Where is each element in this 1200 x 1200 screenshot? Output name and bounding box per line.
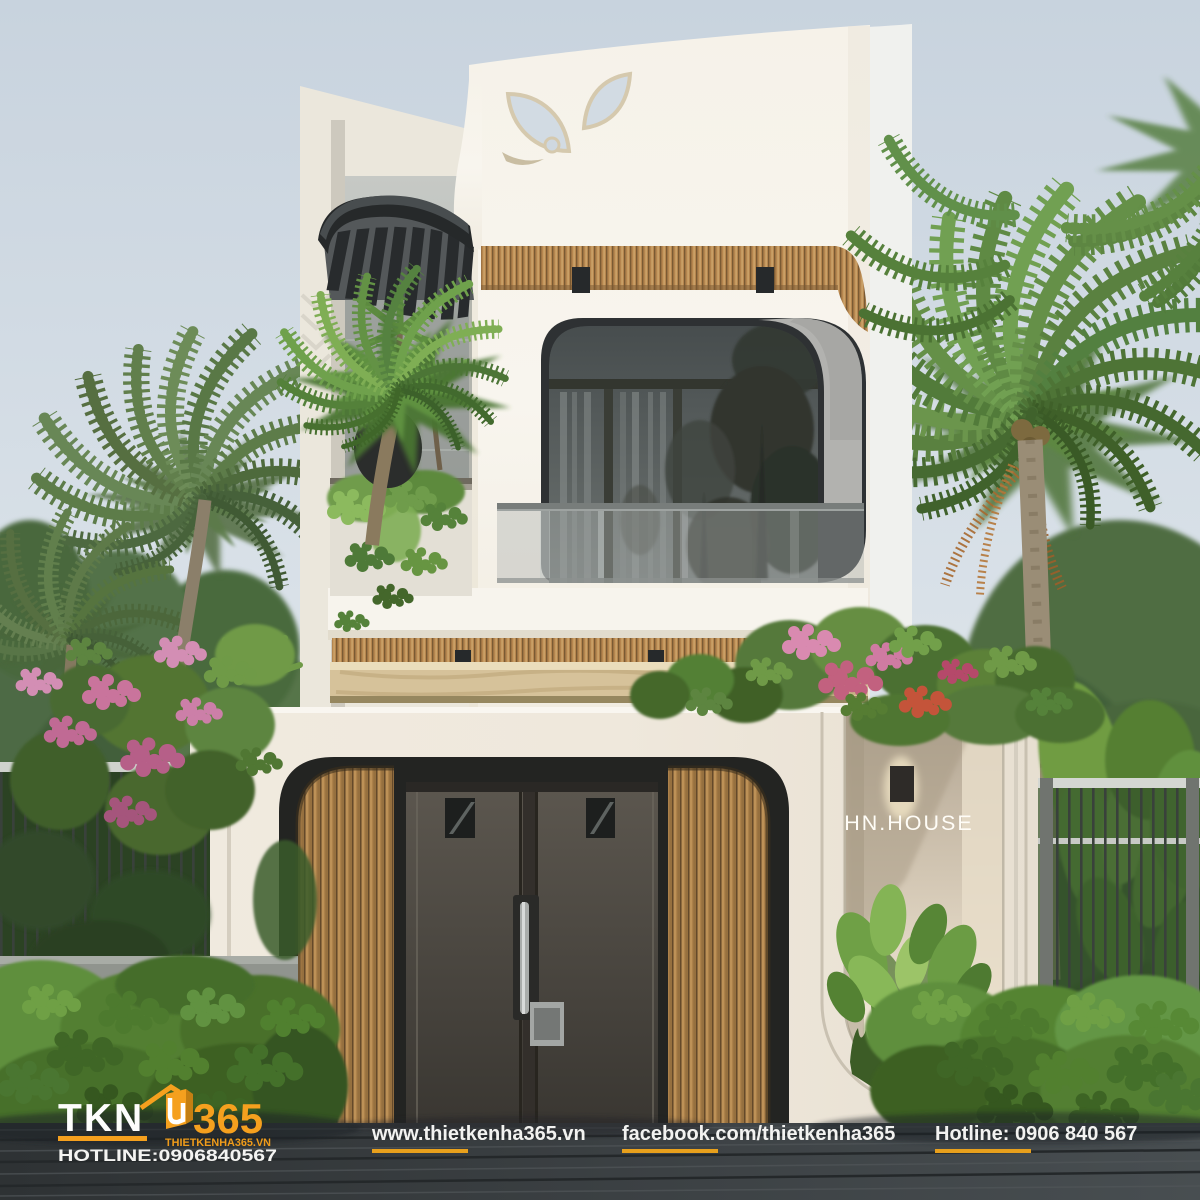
svg-text:www.thietkenha365.vn: www.thietkenha365.vn: [371, 1123, 586, 1145]
svg-text:TKN: TKN: [58, 1097, 144, 1140]
svg-text:HOTLINE:0906840567: HOTLINE:0906840567: [58, 1147, 277, 1165]
svg-text:365: 365: [193, 1095, 263, 1142]
svg-text:facebook.com/thietkenha365: facebook.com/thietkenha365: [622, 1123, 895, 1145]
svg-text:Hotline: 0906 840 567: Hotline: 0906 840 567: [935, 1123, 1137, 1145]
svg-text:HN.HOUSE: HN.HOUSE: [844, 811, 973, 835]
